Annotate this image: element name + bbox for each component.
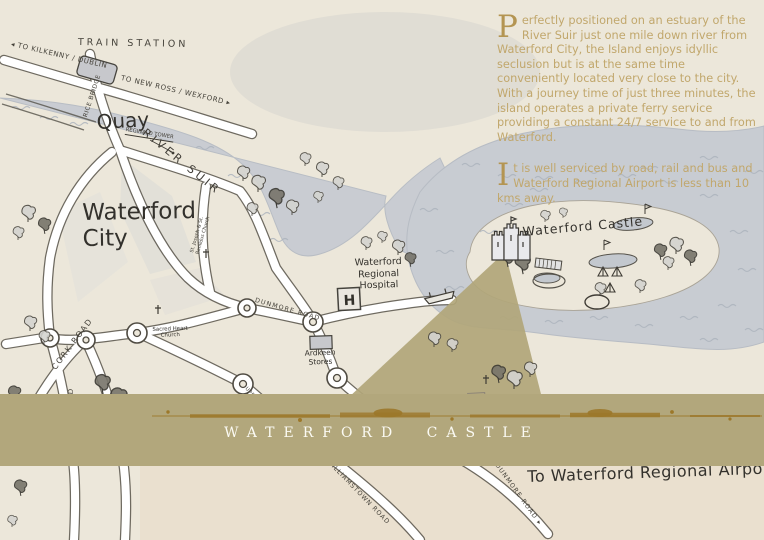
church-icon <box>155 305 161 314</box>
intro-para2-text: t is well serviced by road, rail and bus… <box>497 162 753 204</box>
label-waterford-regional-hospital: Waterford Regional Hospital <box>342 255 415 292</box>
map-page: H ◂ TO KILKENNY / DUBLIN TRAIN STATION T… <box>0 0 764 540</box>
intro-paragraph-1: Perfectly positioned on an estuary of th… <box>497 14 760 145</box>
intro-text-block: Perfectly positioned on an estuary of th… <box>497 14 760 206</box>
label-train-station: TRAIN STATION <box>78 37 189 50</box>
intro-para1-text2: With a journey time of just three minute… <box>497 87 760 145</box>
banner-title: WATERFORD CASTLE <box>0 425 764 441</box>
ink-splatter <box>0 406 764 426</box>
intro-para1-text: erfectly positioned on an estuary of the… <box>497 14 747 85</box>
label-waterford-city: Waterford City <box>82 198 197 252</box>
waterford-city-line2: City <box>82 224 196 252</box>
dropcap-i: I <box>497 162 513 188</box>
hospital-h-letter: H <box>343 293 356 310</box>
dropcap-p: P <box>497 14 522 40</box>
waterford-castle-banner: WATERFORD CASTLE <box>0 394 764 466</box>
label-sacred-heart-church: Sacred Heart Church <box>152 326 188 339</box>
intro-paragraph-2: It is well serviced by road, rail and bu… <box>497 162 760 206</box>
waterford-city-line1: Waterford <box>82 198 196 226</box>
ardkeen-line2: Stores <box>296 357 344 367</box>
label-ardkeen-stores: Ardkeen Stores <box>296 348 345 367</box>
